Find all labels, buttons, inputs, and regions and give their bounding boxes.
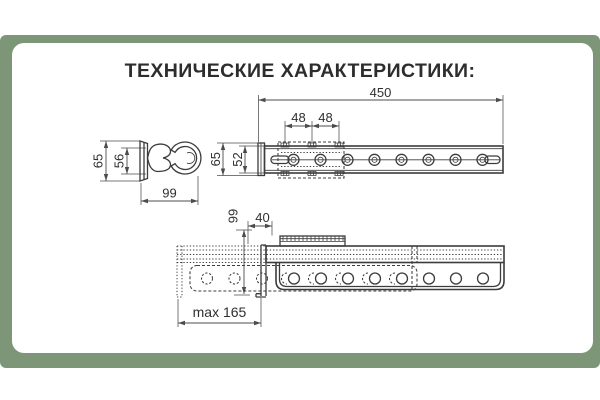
dim-label-front-offset: 40	[255, 210, 269, 225]
view-extended: 40 99 max 165	[177, 209, 504, 327]
profile-wall-plate	[140, 141, 148, 181]
dim-label-rail-outer-height: 65	[208, 152, 223, 166]
dim-label-total-length: 450	[370, 85, 392, 100]
technical-drawing: 65 56 99 450 48 48 65 52	[0, 0, 600, 400]
page: { "title": "ТЕХНИЧЕСКИЕ ХАРАКТЕРИСТИКИ:"…	[0, 0, 600, 400]
mount-bracket	[256, 245, 266, 297]
dim-label-pitch-b: 48	[318, 110, 332, 125]
extended-rail	[266, 246, 504, 290]
dim-label-max-extension: max 165	[193, 304, 247, 320]
view-side: 450 48 48 65 52	[208, 85, 503, 178]
dim-label-section-outer-height: 65	[91, 154, 106, 168]
dim-label-section-inner-height: 56	[112, 154, 127, 168]
top-mount-rail	[280, 236, 345, 246]
profile-c-channel-detail	[187, 153, 195, 164]
dim-label-pitch-a: 48	[291, 110, 305, 125]
dim-label-section-width: 99	[162, 186, 176, 201]
dim-label-rail-inner-height: 52	[230, 152, 245, 166]
profile-spool	[148, 144, 171, 171]
profile-c-channel	[171, 142, 201, 174]
extended-rail-holes	[289, 273, 489, 284]
extended-rail-channel-inner	[280, 263, 501, 287]
dim-label-mount-depth: 99	[226, 209, 241, 223]
view-cross-section: 65 56 99	[91, 141, 201, 205]
extension-lines	[100, 141, 198, 205]
